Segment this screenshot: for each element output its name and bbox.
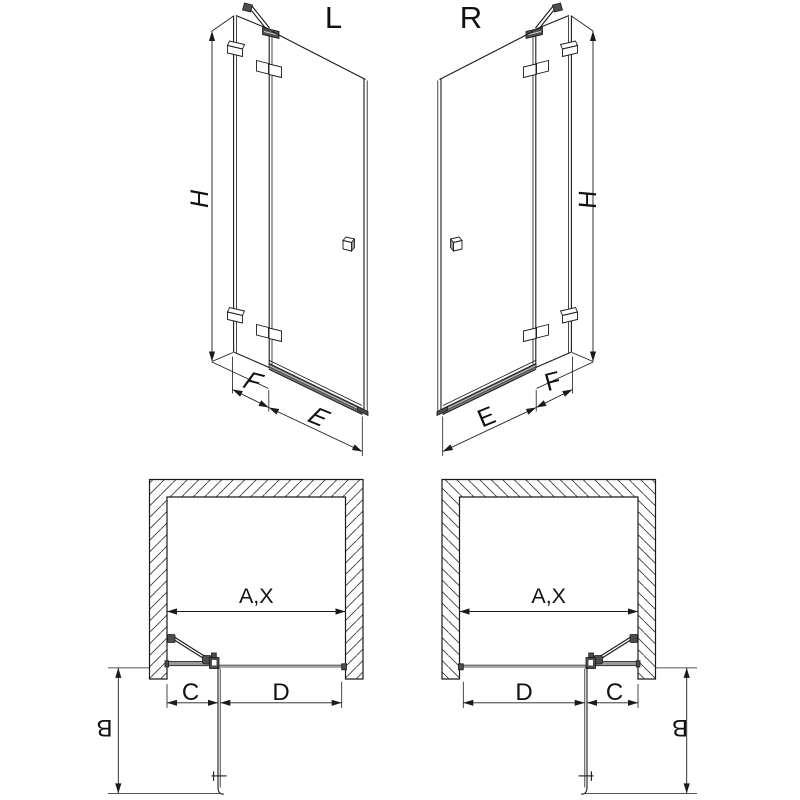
right-plan-dim-b: B: [672, 714, 688, 741]
right-dim-h: H: [574, 188, 602, 210]
right-3d-view: R H F E: [437, 0, 602, 456]
left-plan-dim-ax: A,X: [239, 584, 274, 608]
diagram-canvas: L H F E R H F E A,X C D B A,X D C B: [0, 0, 800, 800]
right-plan-dim-d: D: [515, 679, 532, 706]
left-plan-dim-c: C: [182, 679, 199, 706]
right-view-label: R: [460, 0, 482, 35]
right-plan-dim-ax: A,X: [531, 584, 566, 608]
right-dim-f: F: [539, 367, 568, 397]
left-plan-dim-d: D: [272, 679, 289, 706]
left-dim-f: F: [239, 367, 268, 397]
left-plan-view: A,X C D B: [96, 480, 363, 795]
left-dim-h: H: [186, 189, 214, 208]
left-dim-e: E: [303, 402, 335, 432]
left-plan-dim-b: B: [96, 714, 112, 741]
left-view-label: L: [325, 0, 342, 35]
right-plan-dim-c: C: [606, 679, 623, 706]
right-dim-e: E: [471, 402, 503, 432]
diagram-page: L H F E R H F E A,X C D B A,X D C B: [0, 0, 800, 800]
right-plan-view: A,X D C B: [442, 480, 697, 795]
left-3d-view: L H F E: [186, 0, 368, 456]
